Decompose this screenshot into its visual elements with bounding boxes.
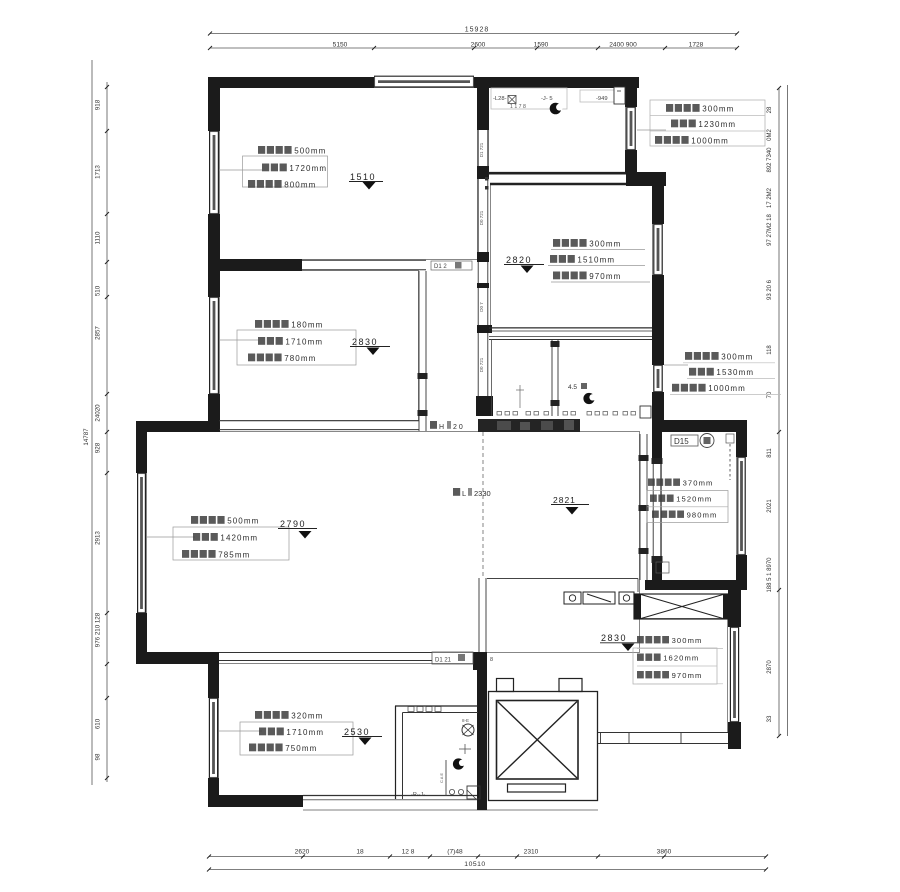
- svg-text:1710mm: 1710mm: [286, 728, 324, 737]
- svg-text:1230mm: 1230mm: [698, 120, 736, 129]
- svg-text:2830: 2830: [352, 337, 378, 347]
- svg-text:14787: 14787: [83, 428, 90, 446]
- svg-text:2 0: 2 0: [453, 424, 463, 431]
- svg-text:D15: D15: [674, 437, 689, 446]
- svg-text:1713: 1713: [95, 165, 102, 179]
- svg-text:2830: 2830: [601, 633, 627, 643]
- svg-text:500mm: 500mm: [227, 516, 259, 525]
- svg-text:750mm: 750mm: [285, 744, 317, 753]
- svg-text:D1 2: D1 2: [434, 264, 447, 270]
- svg-text:1590: 1590: [534, 42, 549, 49]
- svg-text:-R--J-: -R--J-: [411, 792, 425, 798]
- svg-text:3860: 3860: [657, 849, 672, 856]
- svg-text:1420mm: 1420mm: [220, 533, 258, 542]
- svg-text:-L28-: -L28-: [493, 96, 507, 102]
- svg-text:1510mm: 1510mm: [577, 255, 615, 264]
- svg-text:2820: 2820: [506, 255, 532, 265]
- svg-text:H: H: [439, 424, 444, 431]
- svg-text:1510: 1510: [350, 172, 376, 182]
- svg-text:18: 18: [356, 849, 364, 856]
- svg-text:2620: 2620: [295, 849, 310, 856]
- svg-text:33: 33: [767, 715, 773, 722]
- svg-text:2870: 2870: [767, 660, 773, 674]
- svg-text:780mm: 780mm: [284, 354, 316, 363]
- svg-text:4.5: 4.5: [568, 384, 577, 391]
- svg-text:300mm: 300mm: [702, 104, 734, 113]
- svg-text:D1 721: D1 721: [479, 142, 484, 157]
- svg-text:188 5 1 8970: 188 5 1 8970: [767, 557, 773, 593]
- svg-text:1 1 7 8: 1 1 7 8: [510, 104, 526, 110]
- svg-text:300mm: 300mm: [589, 239, 621, 248]
- svg-text:L: L: [462, 489, 466, 498]
- svg-text:118: 118: [767, 345, 773, 355]
- svg-text:5150: 5150: [333, 42, 348, 49]
- svg-text:918: 918: [95, 99, 102, 110]
- svg-text:785mm: 785mm: [218, 550, 250, 559]
- svg-text:1710mm: 1710mm: [285, 337, 323, 346]
- svg-text:1520mm: 1520mm: [676, 495, 712, 504]
- svg-text:12 8: 12 8: [402, 849, 415, 856]
- svg-text:98: 98: [95, 753, 102, 760]
- svg-text:8: 8: [490, 657, 493, 663]
- svg-text:D0 721: D0 721: [479, 210, 484, 225]
- svg-text:976 210 128: 976 210 128: [95, 612, 102, 647]
- svg-text:D1 21: D1 21: [435, 658, 452, 664]
- svg-text:93 20 6: 93 20 6: [767, 279, 773, 300]
- svg-text:892 7340: 892 7340: [767, 147, 773, 173]
- svg-text:2790: 2790: [280, 519, 306, 529]
- svg-text:500mm: 500mm: [294, 146, 326, 155]
- svg-text:610: 610: [95, 718, 102, 729]
- svg-text:180mm: 180mm: [291, 320, 323, 329]
- svg-text:300mm: 300mm: [721, 352, 753, 361]
- svg-text:2913: 2913: [95, 531, 102, 545]
- svg-text:-J- 5: -J- 5: [541, 96, 553, 102]
- svg-text:8-E: 8-E: [462, 718, 469, 723]
- svg-text:D0 721: D0 721: [479, 357, 484, 372]
- svg-text:800mm: 800mm: [284, 180, 316, 189]
- svg-text:370mm: 370mm: [683, 479, 714, 488]
- svg-text:970mm: 970mm: [589, 272, 621, 281]
- svg-text:1000mm: 1000mm: [691, 136, 729, 145]
- svg-text:1728: 1728: [689, 42, 704, 49]
- svg-text:811: 811: [767, 448, 773, 458]
- svg-text:1000mm: 1000mm: [708, 384, 746, 393]
- svg-text:928: 928: [95, 442, 102, 453]
- svg-text:2821: 2821: [553, 495, 576, 505]
- svg-text:0M2: 0M2: [767, 129, 773, 141]
- svg-text:2530: 2530: [344, 727, 370, 737]
- svg-text:980mm: 980mm: [687, 511, 718, 520]
- svg-text:2310: 2310: [524, 849, 539, 856]
- svg-text:15928: 15928: [465, 27, 489, 34]
- svg-text:320mm: 320mm: [291, 711, 323, 720]
- svg-text:C A E: C A E: [439, 773, 444, 783]
- svg-text:2857: 2857: [95, 326, 102, 340]
- svg-text:10510: 10510: [464, 861, 485, 868]
- svg-text:2400 900: 2400 900: [609, 42, 637, 49]
- svg-text:300mm: 300mm: [672, 636, 703, 645]
- svg-text:2021: 2021: [767, 499, 773, 513]
- svg-text:2330: 2330: [474, 489, 491, 498]
- svg-text:D0 7: D0 7: [479, 302, 484, 312]
- svg-text:2600: 2600: [471, 42, 486, 49]
- svg-text:970mm: 970mm: [672, 671, 703, 680]
- svg-text:97 27M2 18: 97 27M2 18: [767, 213, 773, 245]
- svg-text:1620mm: 1620mm: [663, 654, 699, 663]
- svg-text:(7)48: (7)48: [447, 849, 463, 856]
- svg-text:28: 28: [767, 106, 773, 113]
- svg-text:1530mm: 1530mm: [716, 368, 754, 377]
- svg-text:510: 510: [95, 285, 102, 296]
- svg-text:1110: 1110: [95, 231, 102, 244]
- svg-text:-949: -949: [596, 96, 608, 102]
- svg-text:24020: 24020: [95, 404, 102, 422]
- svg-text:17 2M2: 17 2M2: [767, 187, 773, 208]
- svg-text:1720mm: 1720mm: [289, 164, 327, 173]
